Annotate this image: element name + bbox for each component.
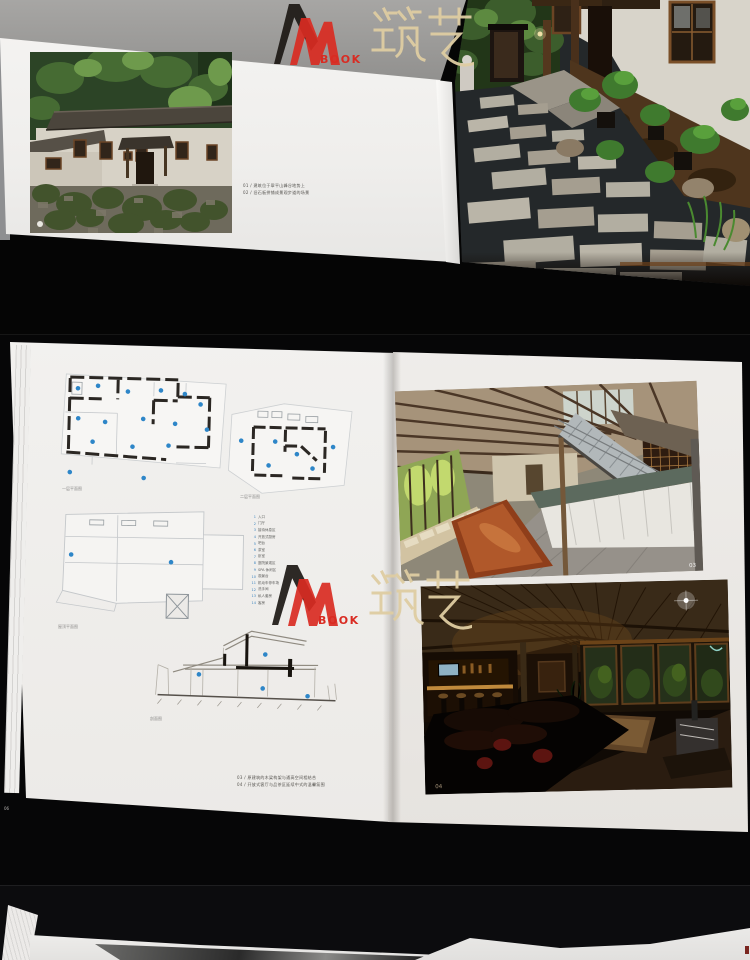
interior-photo-top: 03 <box>395 381 703 581</box>
caption-line: 03 / 原建筑的木梁构架与通高空间相结合 <box>237 774 387 781</box>
plan-legend: 1入口 2门厅 3接待休息区 4开放式厨房 5吧台 6茶室 7卧室 8庭院景观区… <box>250 514 324 606</box>
interior-photo-bottom-wrap: 04 <box>421 580 733 795</box>
roof-plan <box>54 504 261 626</box>
legend-item: 5吧台 <box>250 540 324 547</box>
page-number: 06 <box>4 806 9 811</box>
legend-item: 1入口 <box>250 514 324 521</box>
svg-text:04: 04 <box>435 784 443 790</box>
legend-item: 7卧室 <box>250 554 324 561</box>
legend-item: 8庭院景观区 <box>250 560 324 567</box>
floor-plan-1-label: 一层平面图 <box>62 486 82 492</box>
floor-plan-2 <box>226 394 357 505</box>
floor-plan-2-label: 二层平面图 <box>240 494 260 500</box>
book3-red-speck <box>745 946 749 954</box>
interior-photo-top-wrap: 03 <box>395 381 703 581</box>
legend-item: 11机动车停车场 <box>250 580 324 587</box>
caption-line: 01 / 建筑位于翠平山峰谷地势上 <box>243 182 373 189</box>
legend-item: 4开放式厨房 <box>250 534 324 541</box>
legend-item: 10观景台 <box>250 573 324 580</box>
interior-photo-bottom: 04 <box>421 580 733 795</box>
caption-line: 02 / 旧石板拼铺成景观步道的场景 <box>243 189 373 196</box>
legend-item: 14客房 <box>250 600 324 607</box>
legend-item: 6茶室 <box>250 547 324 554</box>
composite-book-photos: 01 / 建筑位于翠平山峰谷地势上 02 / 旧石板拼铺成景观步道的场景 <box>0 0 750 960</box>
legend-item: 12洗手间 <box>250 587 324 594</box>
garden-path-photo <box>452 0 750 290</box>
floor-plan-1 <box>55 364 233 491</box>
caption-line: 04 / 开放式客厅与品茶区延续中式的温馨氛围 <box>237 781 387 788</box>
roof-plan-label: 屋顶平面图 <box>58 624 78 630</box>
section-drawing <box>127 616 344 725</box>
spread2-captions: 03 / 原建筑的木梁构架与通高空间相结合 04 / 开放式客厅与品茶区延续中式… <box>237 774 387 788</box>
house-photo <box>30 52 232 233</box>
svg-text:03: 03 <box>689 563 697 569</box>
legend-item: 9SPA 休闲区 <box>250 567 324 574</box>
legend-item: 3接待休息区 <box>250 527 324 534</box>
section-label: 剖面图 <box>150 716 162 722</box>
garden-photo-clip <box>452 0 750 290</box>
spread1-captions: 01 / 建筑位于翠平山峰谷地势上 02 / 旧石板拼铺成景观步道的场景 <box>243 182 373 196</box>
legend-item: 2门厅 <box>250 521 324 528</box>
legend-item: 13私人套房 <box>250 593 324 600</box>
